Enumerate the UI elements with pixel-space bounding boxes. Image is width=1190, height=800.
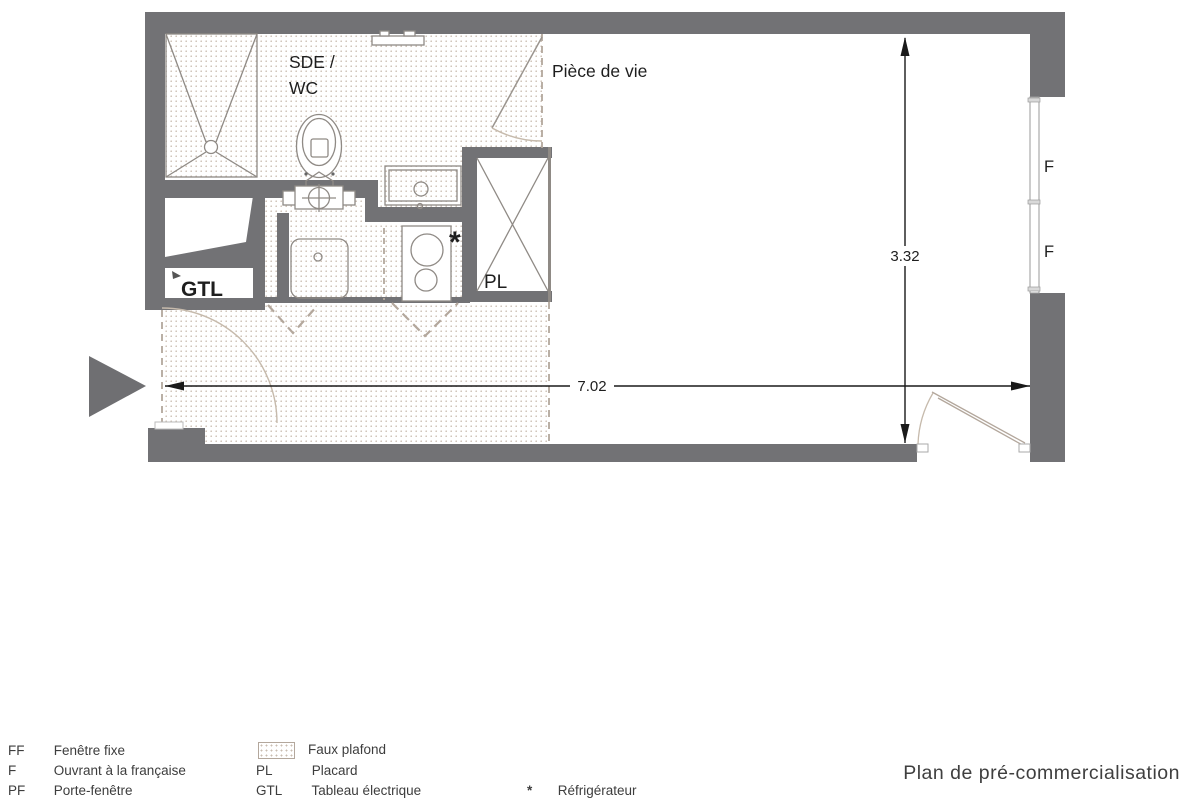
- entry-threshold: [155, 422, 183, 429]
- legend-label: Tableau électrique: [312, 783, 422, 798]
- plan-title: Plan de pré-commercialisation: [903, 762, 1180, 785]
- legend-row-faux-plafond: Faux plafond: [308, 742, 386, 757]
- french-door-leaf-a: [932, 392, 1025, 443]
- wall-left: [145, 12, 165, 310]
- legend-label: Porte-fenêtre: [54, 783, 133, 798]
- legend-label: Réfrigérateur: [558, 783, 637, 798]
- label-pl: PL: [484, 272, 507, 293]
- dim-width-label: 7.02: [577, 378, 606, 395]
- wall-top: [145, 12, 1065, 34]
- wall-counter-left: [277, 213, 289, 302]
- shower-drain: [205, 141, 218, 154]
- legend-row-fridge: * Réfrigérateur: [527, 783, 637, 798]
- legend-row-ff: FF Fenêtre fixe: [8, 743, 125, 758]
- label-sde-line1: SDE /: [289, 52, 335, 72]
- dim-height-label: 3.32: [890, 248, 919, 265]
- faux-plafond-swatch: [258, 742, 295, 759]
- wall-bottom-left-step: [148, 428, 205, 462]
- window-double-casement: [1028, 97, 1040, 293]
- label-sde-line2: WC: [289, 78, 318, 98]
- legend-row-f: F Ouvrant à la française: [8, 763, 186, 778]
- cooktop: [402, 226, 451, 301]
- legend-abbr: PL: [256, 763, 308, 778]
- label-window-f-top: F: [1044, 158, 1054, 176]
- french-door-threshold-left: [917, 444, 928, 452]
- wall-placard-left: [462, 147, 477, 302]
- floor-plan-drawing: SDE / WC Pièce de vie GTL PL F F * 7.02 …: [0, 0, 1190, 520]
- legend-row-pl: PL Placard: [256, 763, 358, 778]
- legend-abbr: FF: [8, 743, 50, 758]
- legend-abbr: *: [527, 783, 554, 798]
- entry-arrow: [89, 356, 146, 417]
- label-living-room: Pièce de vie: [552, 61, 647, 81]
- dim-arrow-down: [901, 424, 910, 443]
- legend-label: Ouvrant à la française: [54, 763, 186, 778]
- window-tick-top: [1028, 98, 1040, 102]
- label-window-f-bottom: F: [1044, 243, 1054, 261]
- window-tick-middle: [1028, 200, 1040, 204]
- legend-label: Placard: [312, 763, 358, 778]
- legend-label: Fenêtre fixe: [54, 743, 125, 758]
- legend-row-gtl: GTL Tableau électrique: [256, 783, 421, 798]
- wall-placard-right-edge: [548, 147, 551, 302]
- french-door-threshold-right: [1019, 444, 1030, 452]
- wall-under-vanity: [365, 207, 467, 222]
- legend-abbr: PF: [8, 783, 50, 798]
- label-gtl: GTL: [181, 278, 223, 301]
- wall-right-top: [1030, 34, 1065, 97]
- floor-plan-page: SDE / WC Pièce de vie GTL PL F F * 7.02 …: [0, 0, 1190, 800]
- dim-arrow-right: [1011, 382, 1030, 391]
- wall-closet-right: [253, 192, 265, 310]
- wall-placard-top: [462, 147, 552, 158]
- window-tick-bottom: [1028, 287, 1040, 291]
- french-door-leaf-b: [938, 398, 1026, 447]
- dim-arrow-up: [901, 37, 910, 56]
- wall-bottom: [205, 444, 917, 462]
- legend-row-pf: PF Porte-fenêtre: [8, 783, 133, 798]
- french-door-arc: [918, 393, 933, 444]
- wall-right-bottom: [1030, 293, 1065, 462]
- fridge-asterisk: *: [449, 226, 461, 259]
- legend-abbr: F: [8, 763, 50, 778]
- legend-abbr: GTL: [256, 783, 308, 798]
- legend-label: Faux plafond: [308, 742, 386, 757]
